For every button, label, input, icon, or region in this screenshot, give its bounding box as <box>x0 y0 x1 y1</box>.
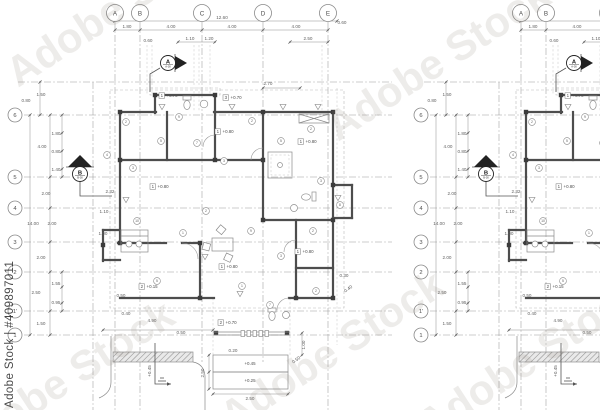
chair <box>216 225 226 235</box>
sink <box>291 205 298 212</box>
dimension-label: 4.00 <box>292 24 301 29</box>
level-tag-value: +0.80 <box>306 139 318 144</box>
level-tag-value: +0.80 <box>227 264 239 269</box>
reference-circle-number: 9 <box>250 229 252 233</box>
level-tag-value: +0.70 <box>231 95 243 100</box>
dimension-label: 4.00 <box>38 144 47 149</box>
dimension-label: 4.00 <box>228 24 237 29</box>
column-marker <box>118 110 122 114</box>
kitchen-counter <box>121 230 148 252</box>
column-marker <box>261 218 265 222</box>
reference-circle-number: 1 <box>182 231 184 235</box>
column-marker <box>213 158 217 162</box>
reference-circle-number: 10 <box>135 219 139 223</box>
column-marker <box>261 110 265 114</box>
toilet-tank <box>312 192 316 201</box>
reference-circle-number: 3 <box>280 254 282 258</box>
level-tag-value: +0.70 <box>167 93 179 98</box>
reference-circle-number: 3 <box>223 159 225 163</box>
reference-circle-number: 3 <box>320 179 322 183</box>
dimension-label: 4.00 <box>167 24 176 29</box>
reference-circle-number: 2 <box>125 120 127 124</box>
opening-triangle-tag <box>335 195 341 200</box>
grid-bubble-label: 6 <box>13 113 16 119</box>
opening-triangle-tag <box>123 197 129 202</box>
grid-bubble-label: D <box>261 10 266 17</box>
dimension-label: 0.80 <box>22 98 31 103</box>
reference-circle-number: 5 <box>280 139 282 143</box>
watermark-layer: Adobe Stock | #409897011 Adobe StockAdob… <box>0 0 600 410</box>
dimension-label: 1.50 <box>37 321 46 326</box>
dimension-label: 1.20 <box>205 36 214 41</box>
column-marker <box>331 183 335 187</box>
level-tag-value: +0.15 <box>147 284 159 289</box>
grid-bubble-label: E <box>326 10 330 17</box>
reference-circle-number: 7 <box>269 303 271 307</box>
dimension-label: 14.00 <box>27 221 39 226</box>
reference-circle-number: 8 <box>339 203 341 207</box>
reference-circle-number: 5 <box>160 139 162 143</box>
brand-watermark: Adobe Stock <box>317 0 558 150</box>
dimension-label: 1.00 <box>99 231 108 236</box>
dimension-label: 1.80 <box>52 131 61 136</box>
opening-triangle-tag <box>237 291 243 296</box>
step-level-label: +0.45 <box>244 361 256 366</box>
grid-bubble-label: 5 <box>13 175 16 181</box>
dimension-label: 1.10 <box>100 209 109 214</box>
grid-bubble-label: C <box>200 10 205 17</box>
reference-circle-number: 2 <box>205 209 207 213</box>
dimension-label: 0.40 <box>343 284 354 293</box>
dimension-label: 2.70 <box>264 81 273 86</box>
dimension-label: 0.30 <box>340 273 349 278</box>
column-marker <box>198 241 202 245</box>
reference-circle-number: 7 <box>196 141 198 145</box>
toilet-tank <box>183 96 191 100</box>
column-marker <box>101 243 105 247</box>
reference-circle-number: 2 <box>310 127 312 131</box>
sink <box>283 312 290 319</box>
column-marker <box>261 158 265 162</box>
section-marker-sheet: B-00 <box>77 176 83 180</box>
dimension-label: 12.60 <box>216 15 228 20</box>
dimension-label: 0.60 <box>338 20 347 25</box>
dimension-label: 0.60 <box>144 38 153 43</box>
dimension-label: 2.50 <box>200 368 205 377</box>
column-marker <box>118 158 122 162</box>
reference-circle-number: 5 <box>156 279 158 283</box>
level-tag-value: +0.70 <box>226 320 238 325</box>
column-marker <box>153 93 157 97</box>
toilet <box>269 312 275 321</box>
level-tag-value: +0.80 <box>303 249 315 254</box>
dimension-label: 0.80 <box>52 149 61 154</box>
dimension-label: 2.00 <box>48 221 57 226</box>
dimension-label: 1.55 <box>52 281 61 286</box>
shower-drain <box>278 163 283 168</box>
dimension-label: 1.50 <box>37 92 46 97</box>
level-tag-value: +0.80 <box>158 184 170 189</box>
column-marker <box>294 296 298 300</box>
chair <box>224 253 233 262</box>
reference-circle-number: 1 <box>241 284 243 288</box>
column-marker <box>118 241 122 245</box>
reference-circle-number: 2 <box>312 229 314 233</box>
stove-burner <box>136 241 142 247</box>
column-marker <box>331 218 335 222</box>
dimension-label: 2.50 <box>32 290 41 295</box>
reference-circle-number: 4 <box>106 153 108 157</box>
opening-triangle-tag <box>202 254 208 259</box>
column-marker <box>214 331 218 335</box>
dimension-label: 1.10 <box>186 36 195 41</box>
dimension-label: 2.00 <box>37 255 46 260</box>
dimension-label: 0.50 <box>117 293 126 298</box>
toilet <box>184 101 190 110</box>
dimension-label: 2.00 <box>42 191 51 196</box>
table <box>212 238 233 251</box>
reference-circle-number: 3 <box>132 166 134 170</box>
dimension-label: 0.20 <box>229 348 238 353</box>
dimension-label: 1.40 <box>52 167 61 172</box>
toilet <box>302 194 311 200</box>
column-marker <box>285 331 289 335</box>
column-marker <box>198 296 202 300</box>
blueprint-canvas: ABCDE654321'112.601.804.004.004.000.601.… <box>0 0 600 410</box>
opening-triangle-tag <box>159 104 165 109</box>
dimension-label: +0.45 <box>147 365 152 377</box>
kitchen-sink <box>126 241 132 247</box>
dimension-label: 0.95 <box>52 300 61 305</box>
level-tag-value: +0.80 <box>223 129 235 134</box>
dimension-label: 2.32 <box>106 189 115 194</box>
reference-circle-number: 9 <box>178 115 180 119</box>
chair <box>202 242 211 251</box>
reference-circle-number: 2 <box>315 289 317 293</box>
reference-circle-number: 2 <box>251 119 253 123</box>
column-marker <box>213 93 217 97</box>
section-marker-sheet: A-00 <box>165 65 171 69</box>
dimension-label: 2.50 <box>304 36 313 41</box>
grid-bubble-label: 3 <box>13 240 16 246</box>
sink <box>200 100 208 108</box>
column-marker <box>331 296 335 300</box>
opening-triangle-tag <box>280 104 286 109</box>
section-marker-a: AA-00 <box>150 54 187 92</box>
opening-triangle-tag <box>229 104 235 109</box>
